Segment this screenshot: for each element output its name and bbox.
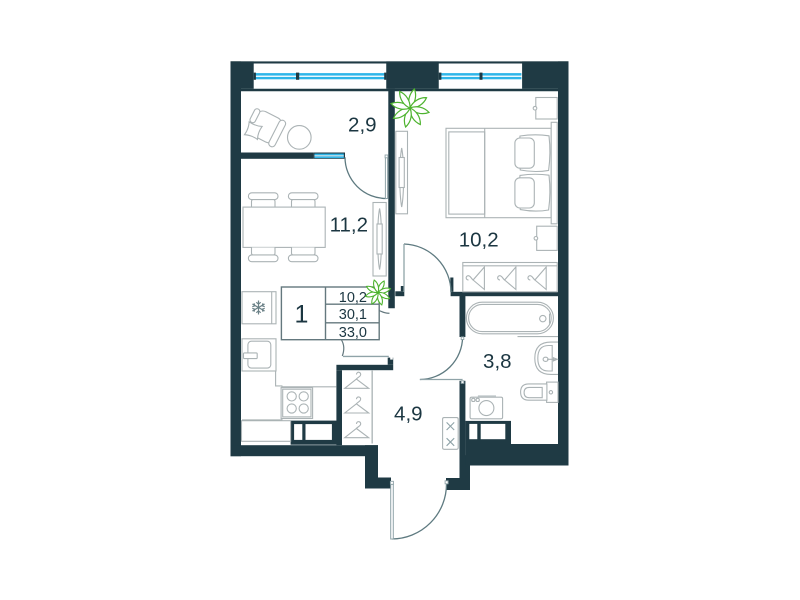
- svg-text:10,2: 10,2: [339, 290, 367, 306]
- svg-text:4,9: 4,9: [394, 402, 423, 425]
- svg-text:2,9: 2,9: [348, 114, 377, 137]
- svg-text:11,2: 11,2: [330, 214, 368, 237]
- svg-text:10,2: 10,2: [459, 228, 499, 251]
- svg-text:33,0: 33,0: [339, 325, 367, 341]
- svg-text:30,1: 30,1: [339, 307, 367, 323]
- svg-text:1: 1: [295, 301, 309, 329]
- svg-text:3,8: 3,8: [483, 350, 512, 373]
